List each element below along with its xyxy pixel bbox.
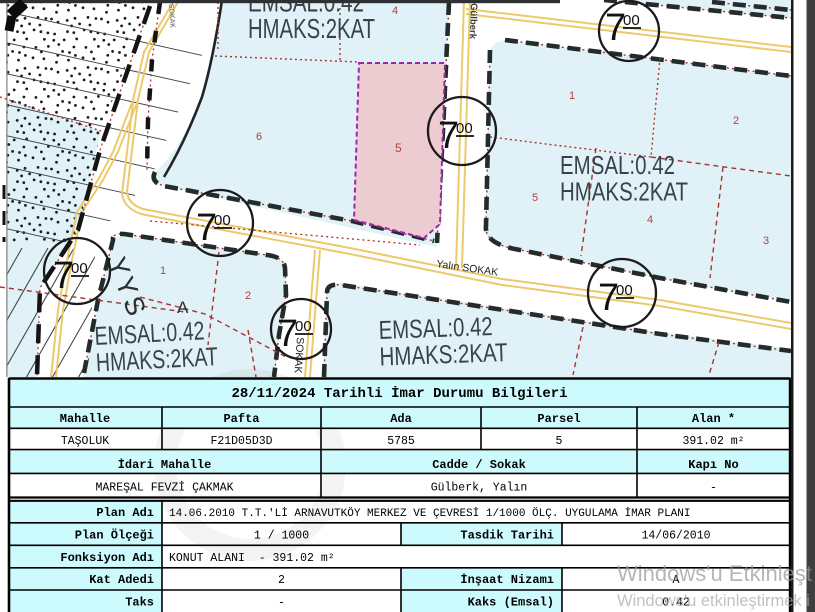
svg-text:00: 00	[623, 12, 640, 29]
svg-text:00: 00	[456, 120, 473, 137]
svg-text:5: 5	[556, 435, 563, 448]
svg-text:14/06/2010: 14/06/2010	[641, 530, 710, 543]
svg-text:6: 6	[256, 131, 262, 143]
svg-text:MAREŞAL FEVZİ ÇAKMAK: MAREŞAL FEVZİ ÇAKMAK	[95, 482, 233, 495]
svg-text:2: 2	[733, 115, 739, 127]
svg-text:1: 1	[160, 265, 166, 277]
svg-text:EMSAL:0.42: EMSAL:0.42	[560, 150, 675, 180]
svg-text:HMAKS:2KAT: HMAKS:2KAT	[379, 337, 508, 371]
svg-text:1 / 1000: 1 / 1000	[254, 530, 309, 543]
svg-text:5785: 5785	[387, 435, 415, 448]
svg-text:KONUT ALANI - 391.02 m²: KONUT ALANI - 391.02 m²	[169, 552, 335, 565]
svg-text:TAŞOLUK: TAŞOLUK	[61, 435, 109, 448]
svg-text:Mahalle: Mahalle	[60, 412, 110, 426]
svg-text:4: 4	[647, 214, 653, 226]
svg-text:1: 1	[569, 90, 575, 102]
svg-text:Tasdik Tarihi: Tasdik Tarihi	[460, 529, 554, 543]
svg-text:Plan Ölçeği: Plan Ölçeği	[75, 527, 154, 543]
svg-text:HMAKS:2KAT: HMAKS:2KAT	[560, 177, 688, 207]
svg-text:Taks: Taks	[125, 596, 154, 610]
svg-text:Fonksiyon Adı: Fonksiyon Adı	[60, 551, 154, 565]
svg-text:3: 3	[763, 235, 769, 247]
svg-text:Kat Adedi: Kat Adedi	[89, 573, 154, 587]
svg-text:Gülberk: Gülberk	[467, 3, 479, 40]
svg-text:Ada: Ada	[390, 412, 412, 426]
svg-text:5: 5	[395, 141, 402, 155]
svg-text:Alan *: Alan *	[692, 412, 735, 426]
svg-text:00: 00	[214, 212, 231, 229]
svg-text:Gülberk, Yalın: Gülberk, Yalın	[431, 482, 528, 495]
svg-text:00: 00	[616, 282, 633, 299]
svg-text:A: A	[177, 298, 189, 317]
svg-text:28/11/2024 Tarihli İmar Durumu: 28/11/2024 Tarihli İmar Durumu Bilgileri	[231, 385, 567, 402]
svg-text:Parsel: Parsel	[537, 412, 580, 426]
svg-text:Kapı No: Kapı No	[688, 458, 738, 472]
svg-text:5: 5	[532, 192, 538, 204]
svg-text:Cadde / Sokak: Cadde / Sokak	[432, 458, 526, 472]
svg-text:İnşaat Nizamı: İnşaat Nizamı	[460, 572, 554, 587]
svg-text:2: 2	[245, 290, 251, 302]
svg-text:00: 00	[71, 260, 88, 277]
svg-text:SOKAK: SOKAK	[291, 337, 305, 374]
svg-text:İdari Mahalle: İdari Mahalle	[118, 457, 212, 472]
svg-text:F21D05D3D: F21D05D3D	[210, 435, 272, 448]
svg-text:-: -	[278, 597, 285, 610]
svg-text:HMAKS:2KAT: HMAKS:2KAT	[248, 13, 375, 44]
svg-text:Kaks (Emsal): Kaks (Emsal)	[468, 596, 554, 610]
svg-text:00: 00	[295, 318, 312, 335]
svg-text:14.06.2010 T.T.'Lİ ARNAVUTKÖY: 14.06.2010 T.T.'Lİ ARNAVUTKÖY MERKEZ VE …	[169, 507, 691, 520]
svg-text:2: 2	[278, 574, 285, 587]
svg-text:-: -	[710, 482, 717, 495]
svg-text:HMAKS:2KAT: HMAKS:2KAT	[95, 341, 218, 377]
svg-text:Windows'u Etkinleşt: Windows'u Etkinleşt	[617, 561, 812, 586]
svg-text:391.02 m²: 391.02 m²	[682, 435, 744, 448]
svg-text:4: 4	[392, 5, 398, 17]
svg-text:Pafta: Pafta	[223, 412, 259, 426]
svg-text:Windows'u etkinleştirmek i: Windows'u etkinleştirmek i	[617, 592, 810, 610]
svg-text:Plan Adı: Plan Adı	[96, 506, 154, 520]
